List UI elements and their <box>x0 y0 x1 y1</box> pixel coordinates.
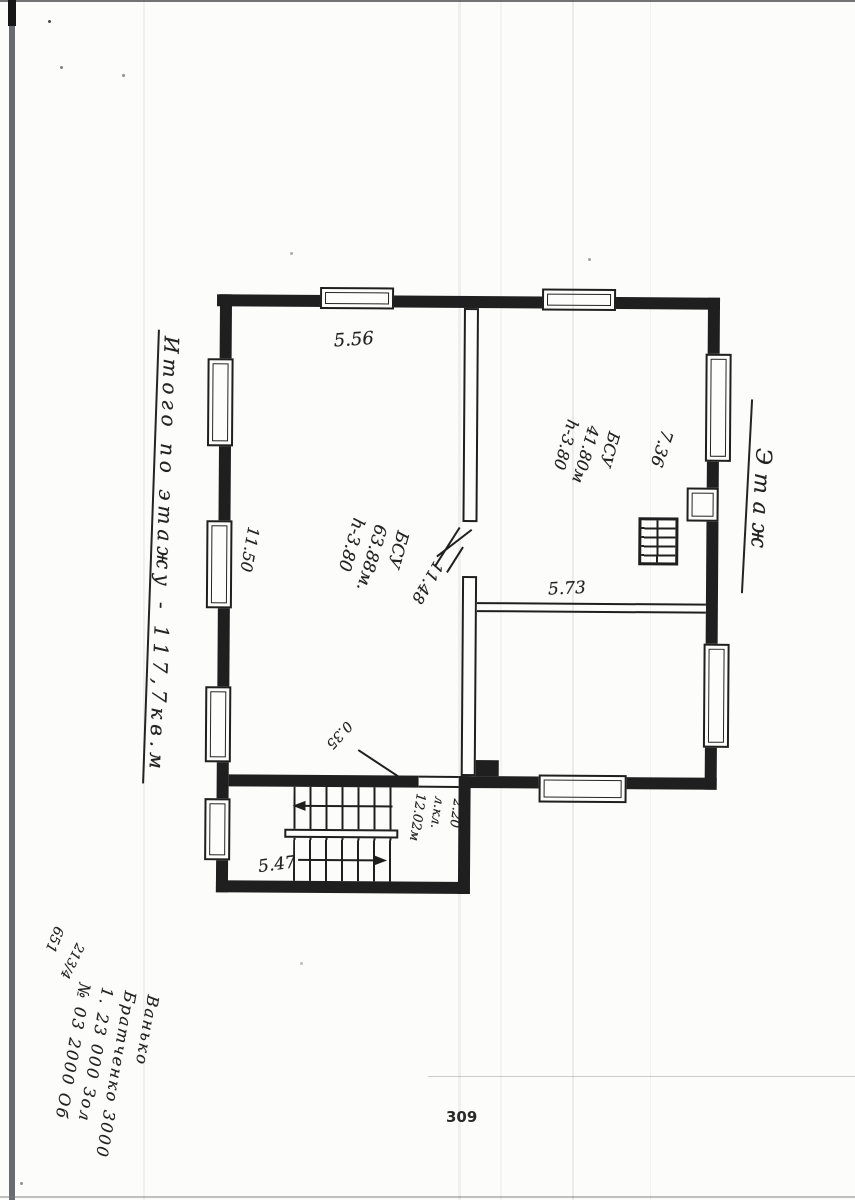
window-left-2 <box>206 520 233 608</box>
dim-11-50: 11.50 <box>236 525 263 573</box>
stove-vent-shaft <box>638 517 678 565</box>
partition-vertical-lower <box>461 576 477 776</box>
dim-11-48: 11.48 <box>408 558 448 607</box>
room-label-bsu-right: БСУ 41.80м h-3.80 <box>546 417 625 492</box>
window-top-1 <box>320 287 394 310</box>
scan-dot <box>20 1182 23 1185</box>
stair-handrail <box>284 829 398 839</box>
stair-arrow-up-head <box>292 801 305 811</box>
window-right-1 <box>705 354 732 462</box>
partition-vertical-upper <box>462 308 478 522</box>
window-left-stair <box>204 798 230 860</box>
stair-flight-upper <box>293 787 397 832</box>
window-top-2 <box>542 289 616 312</box>
stair-arrow-down-head <box>374 855 387 865</box>
outer-wall-bottom-left <box>216 880 470 894</box>
dim-7-36: 7.36 <box>646 427 677 469</box>
window-left-1 <box>207 358 234 446</box>
partition-horizontal-right <box>477 602 706 614</box>
door-swing-stroke <box>446 547 464 573</box>
scan-dot <box>122 74 125 77</box>
stairwell-doorway-threshold <box>419 776 459 788</box>
window-left-3 <box>205 686 232 762</box>
scan-dot <box>290 252 293 255</box>
dim-5-47: 5.47 <box>257 852 297 877</box>
scan-dot <box>300 962 303 965</box>
scan-dot <box>60 66 63 69</box>
scanned-page: 5.56 7.36 11.50 11.48 5.73 0.35 5.47 БСУ… <box>0 0 855 1200</box>
scan-dot <box>588 258 591 261</box>
dim-5-56: 5.56 <box>333 328 374 351</box>
scan-corner-mark <box>8 0 16 26</box>
stairwell-label: 2.20 л.кл. 12.02м <box>403 792 466 848</box>
page-number: 309 <box>446 1108 477 1126</box>
scan-dot <box>48 20 51 23</box>
dim-0-35: 0.35 <box>323 718 356 752</box>
dim-5-73: 5.73 <box>548 578 587 600</box>
room-label-bsu-left: БСУ 63.88м. h-3.80 <box>328 515 413 600</box>
wall-niche-right <box>686 488 718 522</box>
window-right-2 <box>703 644 730 748</box>
window-bottom <box>539 775 627 804</box>
stairwell-top-wall <box>229 774 419 787</box>
